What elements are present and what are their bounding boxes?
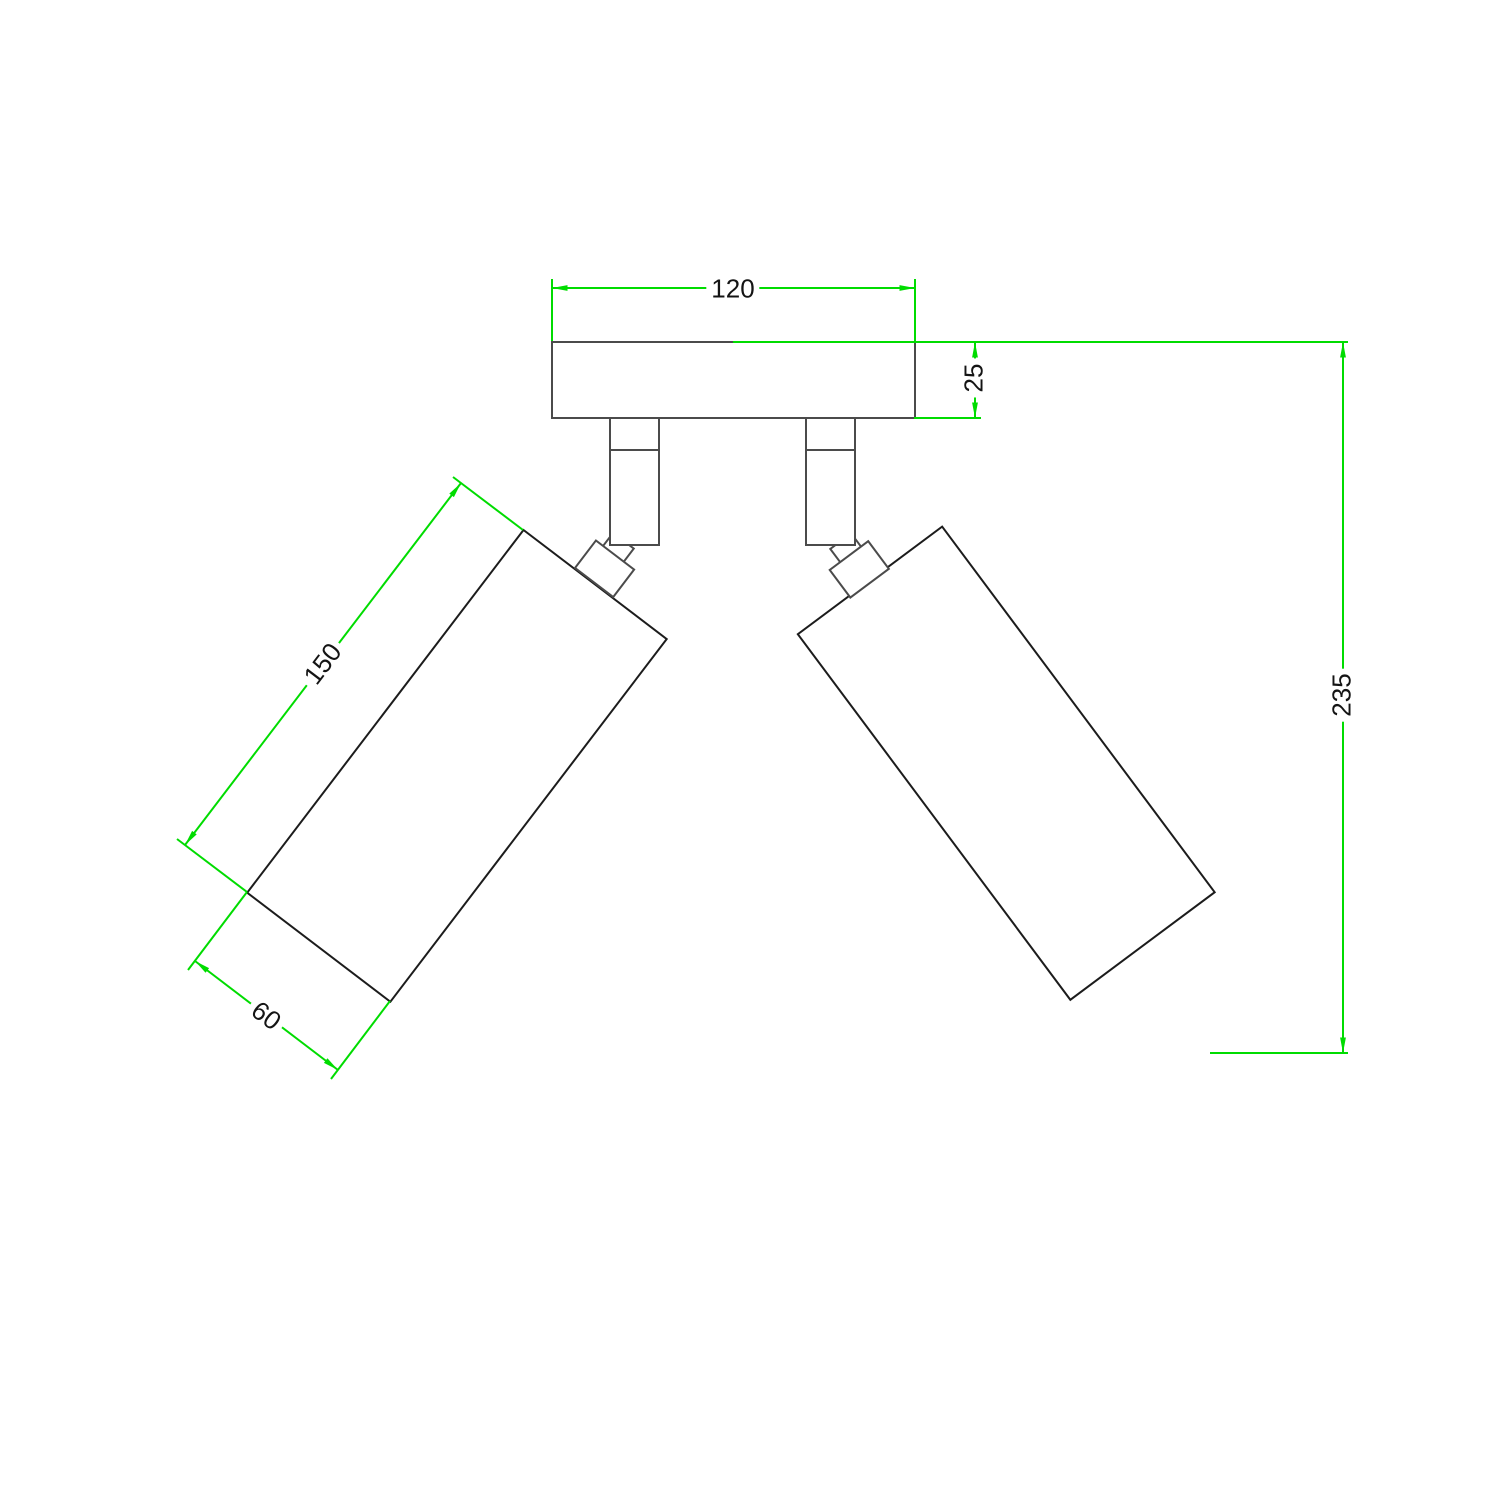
ext-line-spot-length-top <box>453 477 523 530</box>
dimension-label-plate-width: 120 <box>706 275 759 302</box>
technical-drawing-canvas: 120 25 150 60 235 <box>0 0 1500 1500</box>
ext-line-spot-diameter-top <box>188 892 247 970</box>
right-spotlight-cylinder <box>798 527 1215 1000</box>
right-stem <box>806 416 855 545</box>
dimension-label-plate-thickness: 25 <box>960 359 987 398</box>
dimension-label-overall-height: 235 <box>1328 668 1355 721</box>
left-stem <box>610 416 659 545</box>
drawing-svg <box>0 0 1500 1500</box>
right-spotlight-body <box>798 527 1215 1000</box>
ext-line-spot-diameter-bottom <box>331 1001 390 1079</box>
mounting-plate <box>552 342 915 418</box>
ext-line-spot-length-bottom <box>177 839 247 892</box>
left-spotlight-body <box>247 530 667 1002</box>
left-spotlight-cylinder <box>247 530 667 1002</box>
